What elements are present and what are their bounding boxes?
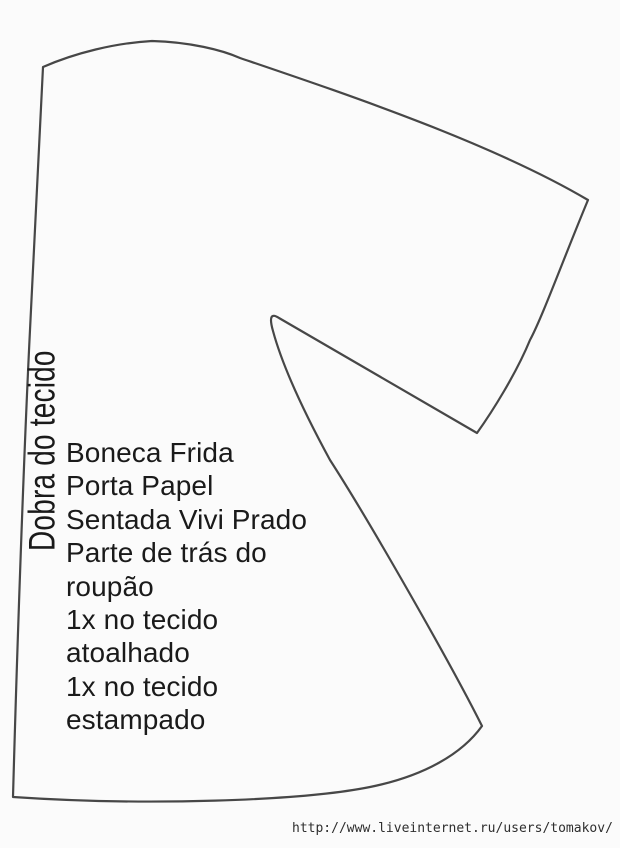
annotation-line: roupão xyxy=(66,570,307,603)
annotation-line: Boneca Frida xyxy=(66,436,307,469)
pattern-annotation: Boneca Frida Porta Papel Sentada Vivi Pr… xyxy=(66,436,307,737)
annotation-line: 1x no tecido xyxy=(66,603,307,636)
watermark-url: http://www.liveinternet.ru/users/tomakov… xyxy=(292,819,613,838)
annotation-line: Parte de trás do xyxy=(66,536,307,569)
annotation-line: Sentada Vivi Prado xyxy=(66,503,307,536)
fold-of-fabric-label: Dobra do tecido xyxy=(24,350,61,551)
annotation-line: 1x no tecido xyxy=(66,670,307,703)
scanned-pattern-page: Dobra do tecido Boneca Frida Porta Papel… xyxy=(0,0,620,848)
annotation-line: Porta Papel xyxy=(66,469,307,502)
annotation-line: estampado xyxy=(66,703,307,736)
annotation-line: atoalhado xyxy=(66,636,307,669)
